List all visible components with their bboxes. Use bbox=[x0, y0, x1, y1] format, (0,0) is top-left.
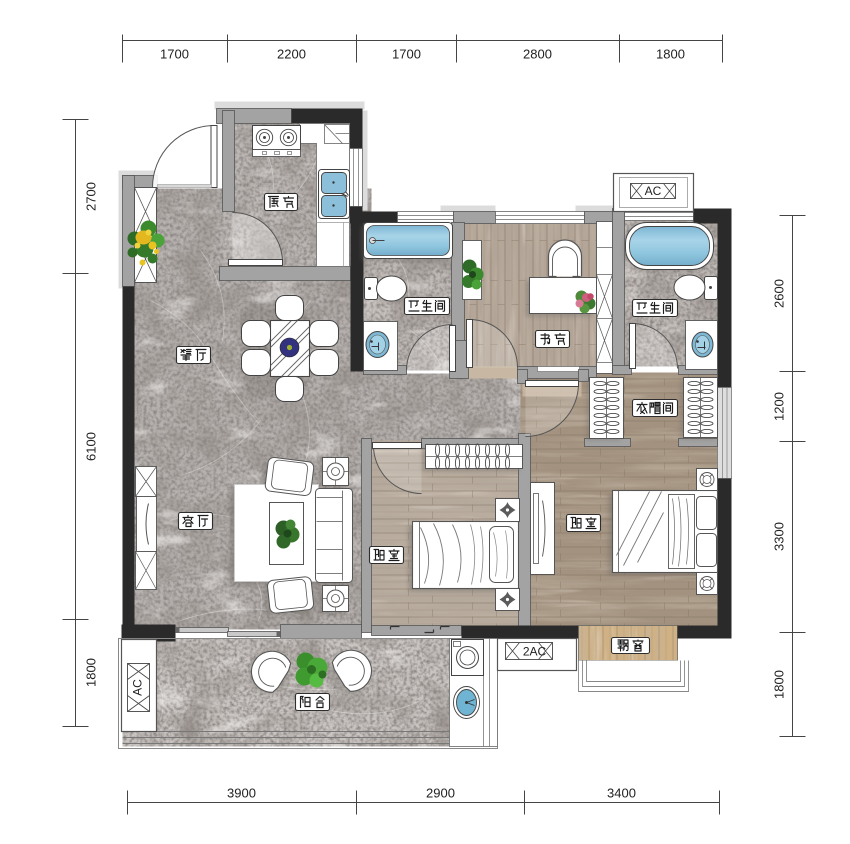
svg-text:1800: 1800 bbox=[772, 670, 787, 699]
svg-text:3300: 3300 bbox=[772, 522, 787, 551]
svg-text:2700: 2700 bbox=[84, 182, 99, 211]
svg-text:2200: 2200 bbox=[277, 47, 306, 62]
svg-text:1700: 1700 bbox=[392, 47, 421, 62]
svg-text:2800: 2800 bbox=[523, 47, 552, 62]
svg-text:3900: 3900 bbox=[227, 786, 256, 801]
svg-text:1700: 1700 bbox=[160, 47, 189, 62]
svg-text:2AC: 2AC bbox=[523, 645, 547, 659]
svg-text:2900: 2900 bbox=[426, 786, 455, 801]
svg-text:6100: 6100 bbox=[84, 432, 99, 461]
svg-text:3400: 3400 bbox=[607, 786, 636, 801]
svg-text:1200: 1200 bbox=[772, 392, 787, 421]
svg-text:2600: 2600 bbox=[772, 279, 787, 308]
svg-text:1800: 1800 bbox=[656, 47, 685, 62]
svg-text:1800: 1800 bbox=[84, 658, 99, 687]
svg-text:AC: AC bbox=[645, 184, 662, 198]
svg-text:AC: AC bbox=[131, 679, 145, 696]
